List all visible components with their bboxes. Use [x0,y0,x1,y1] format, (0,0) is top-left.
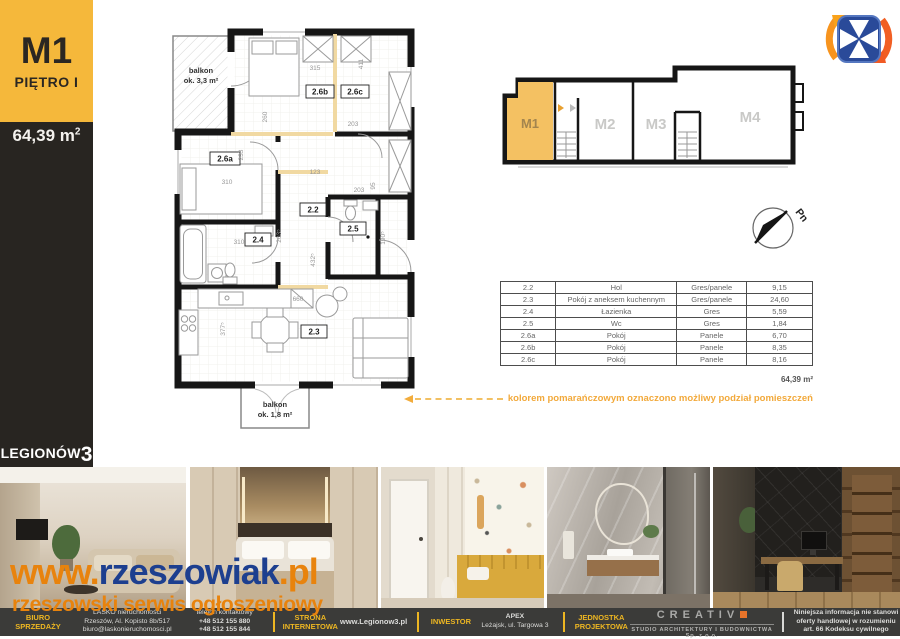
note-arrow-icon [404,395,413,403]
watermark-tagline: rzeszowski serwis ogłoszeniowy [12,593,323,617]
room-label-26c: 2.6c [347,88,363,97]
table-total: 64,39 m² [500,375,813,384]
note-dashed-line [415,398,503,400]
photo-bathroom [547,467,710,608]
overview-label-m1: M1 [521,116,539,131]
cell-name: Wc [556,318,677,330]
cell-area: 5,59 [747,306,813,318]
balcony-bottom-area: ok. 1,8 m² [258,410,293,419]
table-row: 2.6a Pokój Panele 6,70 [501,330,813,342]
note-text: kolorem pomarańczowym oznaczono możliwy … [508,393,813,404]
cell-floor: Gres/panele [677,294,747,306]
dim-233: 233 [238,149,245,160]
watermark-www: www. [10,551,99,592]
project-name: LEGIONÓW [1,445,81,461]
north-label: Pn [793,206,811,224]
overview-label-m3: M3 [646,116,667,133]
photo-office [713,467,900,608]
watermark-url: www.rzeszowiak.pl [10,551,318,593]
cell-area: 8,16 [747,354,813,366]
sidebar: M1 PIĘTRO I 64,39 m2 LEGIONÓW3 [0,0,93,470]
investor-block: APEX Leżajsk, ul. Targowa 3 [475,613,555,631]
dim-310a: 310 [222,179,233,186]
balcony-top: balkon ok. 3,3 m² [173,36,230,131]
cell-floor: Gres/panele [677,282,747,294]
cell-floor: Gres [677,306,747,318]
footer-divider [563,612,565,632]
unit-area-sup: 2 [75,126,81,137]
unit-id: M1 [0,30,93,72]
unit-area: 64,39 m2 [0,126,93,146]
cell-name: Hol [556,282,677,294]
dim-3775: 377⁵ [220,322,227,336]
table-row: 2.6b Pokój Panele 8,35 [501,342,813,354]
cell-floor: Panele [677,330,747,342]
floorplan-flyer-page: { "sidebar": { "unit": "M1", "floor": "P… [0,0,900,636]
rzeszow-logo-icon [822,2,896,76]
office-address: Rzeszów, Al. Kopisto 8b/517 [70,618,184,627]
investor-label: INWESTOR [427,617,475,626]
creativ-name: CREATIV [657,609,739,621]
balcony-bottom: balkon ok. 1,8 m² [241,385,309,428]
cell-name: Łazienka [556,306,677,318]
office-email: biuro@laskonieruchomosci.pl [70,626,184,635]
watermark-tld: .pl [279,551,318,592]
investor-address: Leżajsk, ul. Targowa 3 [475,622,555,631]
creativ-square-icon [740,611,747,618]
dim-4325: 432⁵ [310,253,317,267]
table-row: 2.3 Pokój z aneksem kuchennym Gres/panel… [501,294,813,306]
building-overview: M1 M2 M3 M4 [498,52,813,177]
creativ-subtitle: STUDIO ARCHITEKTURY I BUDOWNICTWA Sp. z … [630,624,775,639]
division-note: kolorem pomarańczowym oznaczono możliwy … [404,393,813,404]
dim-1905: 190⁵ [380,231,387,245]
table-row: 2.5 Wc Gres 1,84 [501,318,813,330]
legal-note: Niniejsza informacja nie stanowi oferty … [792,609,900,635]
cell-name: Pokój [556,342,677,354]
dim-203a: 203 [348,121,359,128]
cell-id: 2.3 [501,294,556,306]
dim-660: 660 [293,296,304,303]
dim-123: 123 [310,169,321,176]
unit-floor: PIĘTRO I [0,74,93,90]
cell-area: 6,70 [747,330,813,342]
phone-2: +48 512 155 844 [184,626,264,635]
table-row: 2.6c Pokój Panele 8,16 [501,354,813,366]
cell-area: 24,60 [747,294,813,306]
cell-area: 1,84 [747,318,813,330]
phone-1: +48 512 155 880 [184,618,264,627]
cell-area: 8,35 [747,342,813,354]
balcony-top-label: balkon [189,66,214,75]
cell-id: 2.4 [501,306,556,318]
cell-id: 2.5 [501,318,556,330]
north-arrow-icon: Pn [742,192,812,254]
photo-kids-room [381,467,544,608]
table-row: 2.2 Hol Gres/panele 9,15 [501,282,813,294]
unit-badge: M1 PIĘTRO I [0,0,93,122]
dim-2035: 203⁵ [276,229,283,243]
cell-id: 2.6c [501,354,556,366]
investor-name: APEX [475,613,555,622]
project-number: 3 [81,443,93,466]
room-label-23: 2.3 [308,328,320,337]
cell-id: 2.2 [501,282,556,294]
cell-name: Pokój [556,330,677,342]
balcony-bottom-label: balkon [263,400,288,409]
balcony-top-area: ok. 3,3 m² [184,76,219,85]
dim-260: 260 [262,111,269,122]
room-label-26a: 2.6a [217,155,233,164]
cell-name: Pokój [556,354,677,366]
creativ-logo: CREATIV STUDIO ARCHITEKTURY I BUDOWNICTW… [630,605,775,639]
dim-411: 411 [358,58,365,69]
design-unit-label: JEDNOSTKA PROJEKTOWA [573,613,630,632]
cell-area: 9,15 [747,282,813,294]
dim-203b: 203 [354,187,365,194]
cell-name: Pokój z aneksem kuchennym [556,294,677,306]
overview-label-m2: M2 [595,116,616,133]
room-label-22: 2.2 [307,206,319,215]
footer-divider [417,612,419,632]
room-table: 2.2 Hol Gres/panele 9,15 2.3 Pokój z ane… [500,281,813,366]
dim-95: 95 [370,182,377,190]
website-url: www.Legionow3.pl [338,617,409,627]
dim-310b: 310 [234,239,245,246]
cell-floor: Gres [677,318,747,330]
dim-315: 315 [310,65,321,72]
cell-floor: Panele [677,342,747,354]
watermark-domain: rzeszowiak [99,551,279,592]
room-label-26b: 2.6b [312,88,328,97]
cell-id: 2.6a [501,330,556,342]
project-logo: LEGIONÓW3 [0,443,93,467]
cell-floor: Panele [677,354,747,366]
cell-id: 2.6b [501,342,556,354]
footer-divider-white [782,612,784,632]
unit-area-value: 64,39 m [13,126,75,145]
overview-label-m4: M4 [740,109,761,126]
floor-plan: balkon ok. 3,3 m² balkon ok. 1,8 m² [163,22,418,432]
room-label-25: 2.5 [347,225,359,234]
table-row: 2.4 Łazienka Gres 5,59 [501,306,813,318]
room-label-24: 2.4 [252,236,264,245]
